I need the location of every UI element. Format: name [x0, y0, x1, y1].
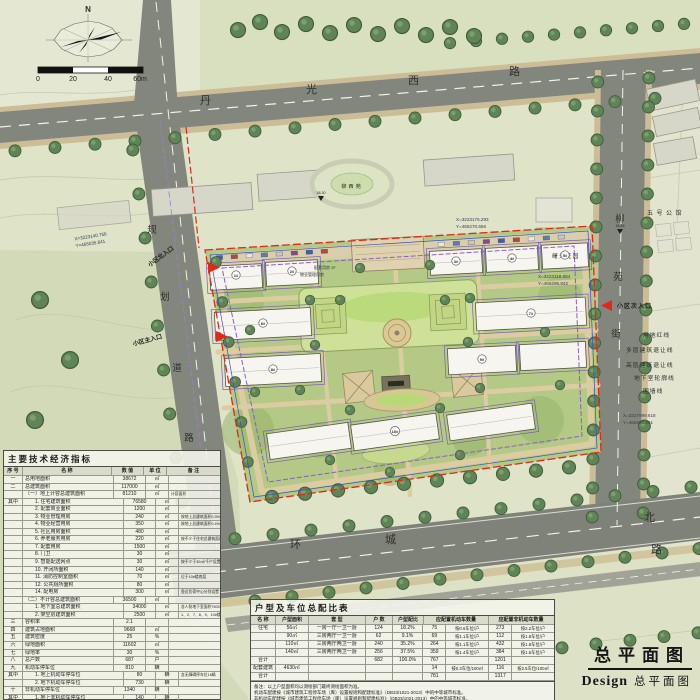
building-tag: 3# [454, 259, 459, 264]
road-name-char: 丹 [200, 95, 212, 107]
svg-text:X=3223175.293: X=3223175.293 [456, 217, 489, 222]
table-row: 五建筑密度25% [4, 634, 220, 642]
spot-elevation-value: 18.30 [317, 191, 326, 195]
building-tag: 1# [234, 273, 239, 278]
table-row: 九机动车停车位810辆 [4, 665, 220, 673]
table-row: 八总户数687户 [4, 657, 220, 665]
road-name-char: 西 [408, 75, 420, 87]
table-row: 七绿地率30% [4, 650, 220, 658]
table-row: 2. 架空层建筑面积2500㎡1、2、7、8、9、10#楼 [4, 612, 220, 620]
svg-text:X=3227999.618: X=3227999.618 [623, 413, 656, 418]
parking-table-header: 名 称户型面积套 型户 数户型配比应配置机动车数量应配置非机动车数量 [251, 616, 554, 625]
scale-tick: 0 [36, 76, 40, 83]
table-row: 5. 社区用房面积480㎡ [4, 529, 220, 537]
road-name-char: 路 [184, 432, 194, 444]
table-row: 3. 物业管理用房240㎡按地上总建筑面积0.3%设置 [4, 514, 220, 522]
table-row: 14. 配电房300㎡靠近负荷中心分别设置 [4, 589, 220, 597]
master-plan-sheet: N 0 20 40 60m 丹 光 西 路 规 划 道 路 柳 苑 街 环 城 … [0, 0, 700, 700]
road-name-char: 苑 [613, 271, 623, 283]
parking-table-notes: 备注：以上户型面积均以测绘部门最终测绘面积为准。机动车配建按《城市建筑工程停车场… [251, 681, 554, 700]
table-row: 其中1. 地上机动车停车位80辆含无障碍停车位16辆 [4, 672, 220, 680]
building-tag: 8# [271, 367, 276, 372]
table-row: 2. 地下机动车停车位730辆 [4, 680, 220, 688]
road-name-char: 环 [290, 539, 302, 551]
table-header-row: 序 号名 称数 值单 位备 注 [4, 467, 220, 476]
table-row: 11. 消防控制室面积70㎡位于10#楼底层 [4, 574, 220, 582]
legend-fence-line: 围墙线 [643, 387, 663, 395]
road-name-char: 规 [147, 225, 157, 236]
table-row: 4. 物业经营用房350㎡按地上总建筑面积0.4%设置 [4, 521, 220, 529]
building-tag: 6# [261, 321, 266, 326]
table-row: 其中1. 住宅建筑面积76580㎡ [4, 499, 220, 507]
table-row: 二总建筑面积117000㎡ [4, 484, 220, 492]
table-row: 1. 地下室总建筑面积34000㎡含人防地下室面积7500㎡ [4, 604, 220, 612]
parking-table-title: 户型及车位总配比表 [251, 600, 554, 616]
table-row: 其中1. 地上非机动车停车位140辆 [4, 695, 220, 700]
table-row: 一总用地面积38672㎡ [4, 476, 220, 484]
table-row: 8. 门卫30㎡ [4, 551, 220, 559]
road-name-char: 城 [385, 533, 397, 546]
table-row: 住宅56㎡一房一厅一卫一厨12418.2%75按0.6车位/户273按2.2车位… [251, 625, 554, 633]
table-row: 90㎡三房两厅一卫一厨629.1%69按1.1车位/户112按1.8车位/户 [251, 633, 554, 641]
table-row: 合计682100.0%7671201 [251, 657, 554, 665]
site-label-peitao: 配套用房 2F [314, 264, 336, 270]
svg-text:Y=465290.091: Y=465290.091 [623, 420, 653, 425]
secondary-entrance-label: 小区次入口 [616, 302, 652, 310]
table-row: 合计7811317 [251, 673, 554, 681]
table-row: 140㎡三房两厅两卫一厨25637.5%359按1.4车位/户384按1.5车位… [251, 649, 554, 657]
table-row: 10. 开闭所面积140㎡ [4, 567, 220, 575]
scale-tick: 40 [104, 76, 112, 83]
road-name-char: 划 [160, 291, 170, 303]
sheet-title-english: Design [582, 674, 628, 689]
svg-text:Y=465270.656: Y=465270.656 [456, 224, 486, 229]
legend-highrise-setback: 高层建筑退让线 [626, 361, 674, 369]
road-name-char: 路 [651, 543, 663, 556]
parking-ratio-table: 户型及车位总配比表 名 称户型面积套 型户 数户型配比应配置机动车数量应配置非机… [250, 599, 555, 700]
legend-basement-outline: 地下室轮廓线 [634, 374, 675, 382]
road-name-char: 路 [509, 65, 521, 78]
building-tag: 7# [529, 311, 534, 316]
building-tag: 9# [480, 357, 485, 362]
table-row: 7. 配套用房1500㎡ [4, 544, 220, 552]
table-row: 12. 公共厕所面积80㎡ [4, 582, 220, 590]
scale-tick: 20 [69, 76, 77, 83]
table-header-row: 名 称户型面积套 型户 数户型配比应配置机动车数量应配置非机动车数量 [251, 616, 554, 625]
spot-elevation-value: 18.45 [616, 224, 625, 228]
svg-text:Y=465295.842: Y=465295.842 [538, 281, 568, 286]
sheet-title-main: 总平面图 [588, 641, 692, 670]
parking-table-body: 住宅56㎡一房一厅一卫一厨12418.2%75按0.6车位/户273按2.2车位… [251, 625, 554, 681]
table-row: （一）地上计容总建筑面积81210㎡计容面积 [4, 491, 220, 499]
economic-indicators-table: 主要技术经济指标 序 号名 称数 值单 位备 注 一总用地面积38672㎡二总建… [3, 450, 221, 700]
table-row: 2. 配套商业面积1200㎡ [4, 506, 220, 514]
road-name-char: 北 [644, 511, 656, 524]
road-name-char: 光 [306, 82, 318, 96]
economic-table-header: 序 号名 称数 值单 位备 注 [4, 467, 220, 476]
place-label-liuxiyuan: 柳西苑 [341, 182, 363, 190]
table-row: 配套建筑4630㎡14按0.3车位/100㎡116按2.5车位/100㎡ [251, 665, 554, 673]
table-row: 9. 智能配送网点30㎡按不少于30㎡/千户设置 [4, 559, 220, 567]
building-tag: 2# [290, 269, 295, 274]
building-tag: 5# [563, 253, 568, 258]
road-name-char: 道 [172, 362, 182, 374]
compass-north-label: N [85, 5, 91, 14]
legend-multistorey-setback: 多层建筑退让线 [626, 346, 674, 354]
scale-tick: 60m [133, 76, 147, 83]
note-line: 非机动车配建按《城市建筑工程停车场（库）设置规则和配建标准》（DB33/1021… [254, 696, 551, 700]
table-row: 四建筑占地面积9668㎡ [4, 627, 220, 635]
economic-table-title: 主要技术经济指标 [4, 451, 220, 467]
sheet-title-sub: 总平面图 [634, 676, 692, 688]
sheet-title-block: 总平面图 Design总平面图 [582, 641, 692, 690]
svg-text:X=3223118.084: X=3223118.084 [538, 274, 571, 279]
table-row: 6. 养老服务用房220㎡按不少于住宅总建筑面积的2‰ [4, 536, 220, 544]
table-row: 三容积率2.1 [4, 619, 220, 627]
building-tag: 10# [392, 429, 399, 434]
table-row: 十非机动车停车位1340辆 [4, 687, 220, 695]
place-label-wuhaogongguan: 五号公馆 [647, 209, 685, 217]
legend-red-line: 用地红线 [643, 331, 670, 339]
site-label-wuye: 物业管理用房 [300, 271, 324, 277]
building-tag: 4# [510, 256, 515, 261]
economic-table-body: 一总用地面积38672㎡二总建筑面积117000㎡（一）地上计容总建筑面积812… [4, 476, 220, 700]
table-row: 六绿地面积11602㎡ [4, 642, 220, 650]
road-name-char: 街 [611, 328, 621, 340]
table-row: （二）不计容总建筑面积36500㎡ [4, 597, 220, 605]
table-row: 110㎡三房两厅两卫一厨24035.2%264按1.1车位/户432按1.8车位… [251, 641, 554, 649]
